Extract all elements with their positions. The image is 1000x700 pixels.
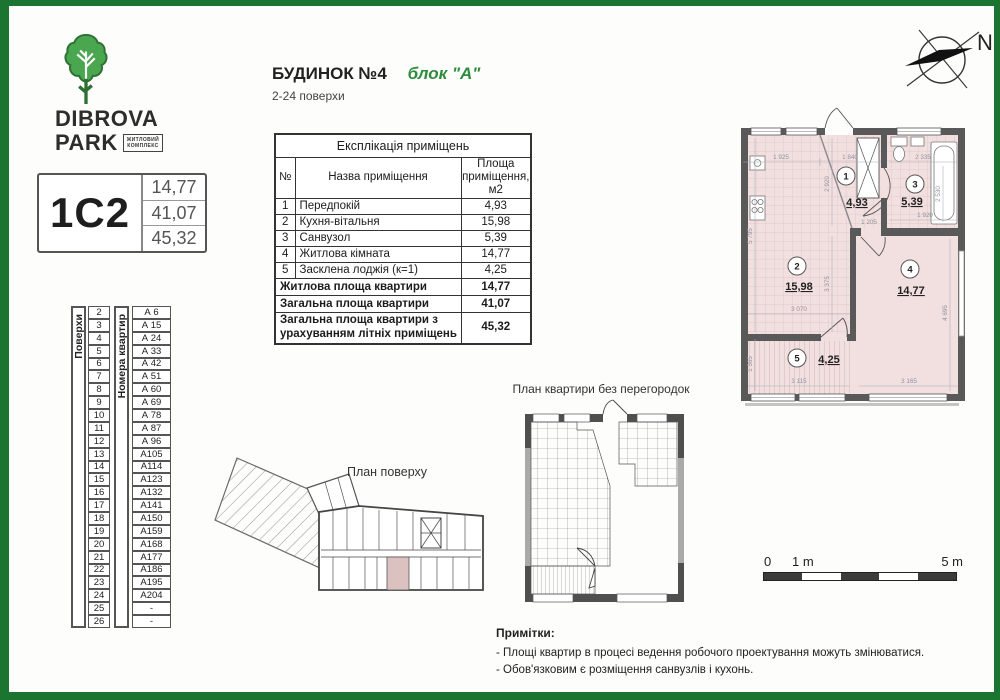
apartment-number-cell: А168 — [132, 538, 171, 551]
column-header-name: Назва приміщення — [295, 158, 461, 199]
floor-number-cell: 12 — [88, 435, 110, 448]
room-number: 3 — [912, 180, 917, 191]
room-area: 4,25 — [818, 354, 839, 366]
explication-row: 3Санвузол5,39 — [275, 230, 531, 246]
apartment-number-cell: А150 — [132, 512, 171, 525]
floor-number-cell: 3 — [88, 319, 110, 332]
room-area: 5,39 — [901, 196, 922, 208]
explication-cell: Передпокій — [295, 198, 461, 214]
apartment-number-cell: А186 — [132, 564, 171, 577]
area-total-value: 41,07 — [143, 201, 205, 227]
explication-cell: 14,77 — [461, 246, 531, 262]
apartment-number-cell: А 69 — [132, 396, 171, 409]
building-title: БУДИНОК №4 блок "А" — [272, 64, 480, 84]
scale-one-label: 1 m — [792, 554, 814, 569]
apartment-number-cell: А132 — [132, 486, 171, 499]
loggia-zone — [531, 566, 595, 594]
explication-title: Експлікація приміщень — [275, 134, 531, 158]
apartment-number-cell: А195 — [132, 576, 171, 589]
explication-cell: 1 — [275, 198, 295, 214]
apartment-number-cell: А105 — [132, 448, 171, 461]
column-header-number: № — [275, 158, 295, 199]
explication-cell: 3 — [275, 230, 295, 246]
dim-label: 1 840 — [842, 154, 858, 161]
apartment-number-cell: А114 — [132, 461, 171, 474]
explication-cell: 4,93 — [461, 198, 531, 214]
explication-row: 4Житлова кімната14,77 — [275, 246, 531, 262]
entrance-door — [603, 400, 627, 414]
brand-badge: ЖИТЛОВИЙ КОМПЛЕКС — [123, 134, 163, 152]
floor-number-cell: 26 — [88, 615, 110, 628]
column-header-area: Площа приміщення, м2 — [461, 158, 531, 199]
scale-zero-label: 0 — [764, 554, 771, 569]
apartment-area-values: 14,77 41,07 45,32 — [141, 175, 205, 251]
explication-cell: Житлова кімната — [295, 246, 461, 262]
room-area: 14,77 — [897, 285, 925, 297]
explication-cell: Кухня-вітальня — [295, 214, 461, 230]
apartments-column-label: Номера квартир — [116, 308, 128, 404]
apartment-number-cell: А 60 — [132, 383, 171, 396]
total-value: 41,07 — [461, 295, 531, 312]
apartment-number-cell: А 15 — [132, 319, 171, 332]
explication-cell: Засклена лоджія (к=1) — [295, 262, 461, 278]
floor-number-cell: 11 — [88, 422, 110, 435]
explication-total-row: Житлова площа квартири14,77 — [275, 278, 531, 295]
total-label: Загальна площа квартири — [275, 295, 461, 312]
building-number: БУДИНОК №4 — [272, 64, 387, 83]
dim-label: 3 115 — [791, 378, 807, 385]
brand-logo: DIBROVA PARK ЖИТЛОВИЙ КОМПЛЕКС — [55, 32, 205, 156]
floor-number-cell: 14 — [88, 461, 110, 474]
apartment-number-cell: А177 — [132, 551, 171, 564]
apartment-number-cell: А 51 — [132, 370, 171, 383]
explication-header-row: № Назва приміщення Площа приміщення, м2 — [275, 158, 531, 199]
total-label: Загальна площа квартири з урахуванням лі… — [275, 312, 461, 344]
explication-cell: 5,39 — [461, 230, 531, 246]
floors-column: 2345678910111213141516171819202122232425… — [88, 306, 110, 628]
bathroom-zone-grid — [619, 422, 677, 486]
brand-name-line2: PARK — [55, 130, 118, 156]
floor-number-cell: 22 — [88, 564, 110, 577]
explication-row: 1Передпокій4,93 — [275, 198, 531, 214]
balcony-slab-edge — [745, 403, 959, 406]
total-value: 45,32 — [461, 312, 531, 344]
dim-label: 1 365 — [747, 356, 754, 372]
apartments-column-label-box: Номера квартир — [114, 306, 129, 628]
scale-five-label: 5 m — [941, 554, 963, 569]
explication-row: 5Засклена лоджія (к=1)4,25 — [275, 262, 531, 278]
floor-number-cell: 17 — [88, 499, 110, 512]
notes-items: - Площі квартир в процесі ведення робочо… — [496, 645, 924, 679]
explication-cell: Санвузол — [295, 230, 461, 246]
compass-north-label: N — [977, 30, 993, 55]
explication-table: Експлікація приміщень № Назва приміщення… — [274, 133, 532, 345]
explication-title-row: Експлікація приміщень — [275, 134, 531, 158]
room-number: 4 — [907, 265, 913, 276]
floor-number-cell: 18 — [88, 512, 110, 525]
apartment-number-cell: А204 — [132, 589, 171, 602]
explication-cell: 4 — [275, 246, 295, 262]
apartment-number-cell: А 96 — [132, 435, 171, 448]
dim-label: 2 530 — [935, 186, 942, 202]
apartment-type-code: 1С2 — [39, 175, 141, 251]
note-item: - Площі квартир в процесі ведення робочо… — [496, 645, 924, 662]
explication-cell: 5 — [275, 262, 295, 278]
open-space-grid — [531, 422, 610, 566]
brand-name-line1: DIBROVA — [55, 108, 205, 130]
dim-label: 2 920 — [824, 176, 831, 192]
floor-number-cell: 20 — [88, 538, 110, 551]
dim-label: 4 695 — [942, 305, 949, 321]
floors-column-label-box: Поверхи — [71, 306, 86, 628]
floor-number-cell: 19 — [88, 525, 110, 538]
room-number: 2 — [794, 262, 799, 273]
notes: Примітки: - Площі квартир в процесі веде… — [496, 625, 924, 679]
floor-number-cell: 21 — [88, 551, 110, 564]
floor-number-cell: 23 — [88, 576, 110, 589]
shaft-box — [857, 138, 879, 198]
explication-cell: 4,25 — [461, 262, 531, 278]
apartment-number-cell: - — [132, 602, 171, 615]
room-area: 4,93 — [846, 197, 867, 209]
dim-label: 3 375 — [824, 276, 831, 292]
scale-bar: 0 1 m 5 m — [759, 554, 969, 581]
dim-label: 3 165 — [901, 378, 917, 385]
dim-label: 3 070 — [791, 306, 807, 313]
oak-tree-icon — [63, 32, 109, 106]
apartments-column: А 6А 15А 24А 33А 42А 51А 60А 69А 78А 87А… — [132, 306, 171, 628]
brochure-page: DIBROVA PARK ЖИТЛОВИЙ КОМПЛЕКС 1С2 14,77… — [0, 0, 1000, 700]
floors-range: 2-24 поверхи — [272, 89, 345, 103]
floor-plan-title: План поверху — [327, 465, 447, 479]
elevator-core — [421, 518, 441, 548]
floor-number-cell: 9 — [88, 396, 110, 409]
floor-number-cell: 2 — [88, 306, 110, 319]
dim-label: 1 920 — [917, 212, 933, 219]
floor-number-cell: 15 — [88, 473, 110, 486]
apartment-number-cell: А159 — [132, 525, 171, 538]
floor-number-cell: 16 — [88, 486, 110, 499]
apartment-number-cell: - — [132, 615, 171, 628]
badge-line2: КОМПЛЕКС — [127, 143, 158, 149]
explication-total-row: Загальна площа квартири41,07 — [275, 295, 531, 312]
floor-number-cell: 5 — [88, 345, 110, 358]
floor-number-cell: 10 — [88, 409, 110, 422]
compass-icon: N — [895, 16, 999, 104]
apartment-number-cell: А 78 — [132, 409, 171, 422]
apartment-number-cell: А141 — [132, 499, 171, 512]
floor-number-cell: 8 — [88, 383, 110, 396]
total-value: 14,77 — [461, 278, 531, 295]
explication-cell: 15,98 — [461, 214, 531, 230]
room-number: 1 — [843, 172, 849, 183]
apartment-number-cell: А 33 — [132, 345, 171, 358]
area-living-value: 14,77 — [143, 175, 205, 201]
dim-label: 2 335 — [915, 154, 931, 161]
floor-number-cell: 25 — [88, 602, 110, 615]
highlighted-apartment — [387, 557, 409, 590]
apartment-number-cell: А 24 — [132, 332, 171, 345]
explication-total-row: Загальна площа квартири з урахуванням лі… — [275, 312, 531, 344]
dim-label: 1 205 — [861, 219, 877, 226]
area-full-value: 45,32 — [143, 226, 205, 251]
apartment-number-cell: А 42 — [132, 358, 171, 371]
no-partitions-plan-title: План квартири без перегородок — [501, 382, 701, 396]
floor-number-cell: 7 — [88, 370, 110, 383]
apartment-floor-plan: 1 925 1 840 2 335 1 205 1 920 3 070 3 16… — [729, 106, 989, 421]
floor-number-cell: 4 — [88, 332, 110, 345]
note-item: - Обов'язковим є розміщення санвузлів і … — [496, 662, 924, 679]
no-partitions-plan — [517, 398, 692, 613]
block-label: блок "А" — [408, 64, 481, 83]
dim-label: 5 795 — [747, 228, 754, 244]
explication-row: 2Кухня-вітальня15,98 — [275, 214, 531, 230]
apartment-number-cell: А123 — [132, 473, 171, 486]
apartment-number-cell: А 6 — [132, 306, 171, 319]
floor-number-cell: 13 — [88, 448, 110, 461]
explication-cell: 2 — [275, 214, 295, 230]
room-number: 5 — [794, 354, 800, 365]
floors-column-label: Поверхи — [73, 308, 85, 365]
apartment-number-cell: А 87 — [132, 422, 171, 435]
total-label: Житлова площа квартири — [275, 278, 461, 295]
floor-number-cell: 24 — [88, 589, 110, 602]
floor-number-cell: 6 — [88, 358, 110, 371]
notes-title: Примітки: — [496, 625, 924, 642]
dim-label: 1 925 — [773, 154, 789, 161]
scale-bar-segments — [763, 572, 957, 581]
apartment-type-card: 1С2 14,77 41,07 45,32 — [37, 173, 207, 253]
room-area: 15,98 — [785, 281, 813, 293]
